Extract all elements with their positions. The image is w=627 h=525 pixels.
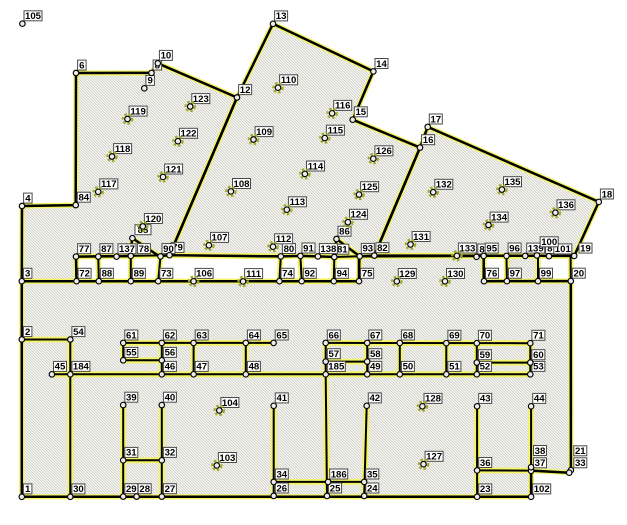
svg-text:64: 64: [249, 330, 260, 341]
svg-text:3: 3: [25, 269, 30, 280]
svg-text:105: 105: [25, 11, 42, 22]
svg-text:91: 91: [303, 243, 314, 254]
svg-text:118: 118: [115, 144, 131, 155]
svg-text:42: 42: [369, 393, 380, 404]
svg-text:99: 99: [541, 269, 552, 280]
svg-text:35: 35: [367, 469, 378, 480]
svg-text:97: 97: [510, 269, 521, 280]
svg-text:132: 132: [436, 180, 452, 191]
svg-text:56: 56: [165, 348, 176, 359]
svg-text:104: 104: [222, 398, 239, 409]
svg-text:88: 88: [102, 269, 113, 280]
svg-text:92: 92: [304, 269, 315, 280]
svg-text:122: 122: [180, 129, 196, 140]
svg-text:93: 93: [362, 244, 373, 255]
svg-text:112: 112: [276, 234, 291, 245]
svg-text:17: 17: [430, 114, 441, 125]
svg-text:128: 128: [425, 394, 442, 405]
svg-text:4: 4: [25, 193, 31, 204]
svg-text:111: 111: [246, 269, 262, 280]
svg-text:58: 58: [370, 349, 381, 360]
svg-text:48: 48: [249, 362, 260, 373]
svg-text:52: 52: [480, 362, 491, 373]
svg-text:6: 6: [79, 60, 84, 71]
svg-text:106: 106: [196, 269, 212, 280]
svg-text:80: 80: [284, 244, 295, 255]
svg-text:32: 32: [165, 448, 176, 459]
svg-text:33: 33: [575, 458, 586, 469]
svg-text:87: 87: [101, 244, 112, 255]
svg-text:46: 46: [165, 362, 176, 373]
svg-text:45: 45: [55, 362, 66, 373]
svg-text:129: 129: [399, 269, 415, 280]
svg-text:138: 138: [320, 244, 337, 255]
svg-text:62: 62: [165, 330, 176, 341]
svg-text:70: 70: [480, 331, 491, 342]
svg-text:36: 36: [480, 458, 491, 469]
svg-text:50: 50: [403, 362, 414, 373]
svg-text:13: 13: [276, 11, 287, 22]
svg-text:28: 28: [139, 484, 150, 495]
svg-text:30: 30: [73, 484, 84, 495]
svg-text:25: 25: [330, 483, 341, 494]
svg-text:23: 23: [480, 484, 491, 495]
svg-text:60: 60: [533, 350, 544, 361]
svg-text:55: 55: [126, 348, 137, 359]
svg-text:15: 15: [355, 107, 366, 118]
svg-text:84: 84: [78, 193, 89, 204]
svg-text:61: 61: [126, 330, 137, 341]
svg-text:10: 10: [161, 51, 172, 62]
svg-text:89: 89: [134, 269, 145, 280]
svg-text:81: 81: [337, 245, 348, 256]
svg-text:82: 82: [377, 243, 388, 254]
svg-text:69: 69: [449, 331, 460, 342]
svg-text:133: 133: [459, 243, 475, 254]
svg-text:126: 126: [376, 146, 392, 157]
svg-text:78: 78: [139, 244, 150, 255]
svg-text:102: 102: [534, 484, 550, 495]
svg-text:125: 125: [362, 182, 379, 193]
svg-text:94: 94: [337, 269, 348, 280]
svg-text:27: 27: [165, 484, 176, 495]
svg-text:65: 65: [276, 330, 287, 341]
svg-text:51: 51: [449, 362, 460, 373]
svg-text:131: 131: [413, 232, 430, 243]
svg-text:39: 39: [126, 393, 137, 404]
svg-text:34: 34: [276, 469, 287, 480]
svg-text:53: 53: [533, 362, 544, 373]
svg-text:75: 75: [362, 269, 373, 280]
svg-text:71: 71: [533, 331, 544, 342]
svg-text:86: 86: [339, 227, 350, 238]
svg-text:108: 108: [233, 179, 250, 190]
svg-text:14: 14: [376, 59, 387, 70]
svg-text:95: 95: [486, 243, 497, 254]
svg-text:120: 120: [145, 214, 161, 225]
svg-text:184: 184: [73, 362, 90, 373]
svg-text:124: 124: [350, 210, 367, 221]
svg-text:38: 38: [535, 446, 546, 457]
svg-text:109: 109: [256, 127, 272, 138]
svg-text:29: 29: [126, 484, 137, 495]
svg-text:40: 40: [165, 393, 176, 404]
svg-text:123: 123: [193, 94, 209, 105]
svg-text:186: 186: [331, 469, 347, 480]
svg-text:121: 121: [166, 164, 183, 175]
svg-text:115: 115: [328, 126, 344, 137]
svg-text:9: 9: [148, 76, 153, 87]
svg-text:12: 12: [240, 85, 251, 96]
svg-text:66: 66: [328, 330, 339, 341]
svg-text:135: 135: [504, 177, 521, 188]
svg-text:67: 67: [370, 330, 381, 341]
svg-text:134: 134: [491, 212, 508, 223]
svg-text:74: 74: [282, 269, 293, 280]
svg-text:73: 73: [161, 269, 172, 280]
svg-text:110: 110: [281, 75, 296, 86]
svg-text:2: 2: [25, 327, 30, 338]
svg-text:57: 57: [328, 349, 339, 360]
svg-text:49: 49: [370, 362, 381, 373]
svg-text:59: 59: [480, 350, 491, 361]
svg-text:26: 26: [276, 483, 287, 494]
svg-text:1: 1: [25, 484, 31, 495]
svg-text:185: 185: [328, 362, 345, 373]
svg-text:44: 44: [534, 394, 545, 405]
svg-text:31: 31: [126, 448, 137, 459]
svg-text:119: 119: [130, 106, 145, 117]
svg-text:19: 19: [580, 243, 591, 254]
svg-text:72: 72: [79, 269, 90, 280]
svg-text:37: 37: [535, 458, 546, 469]
svg-text:127: 127: [426, 452, 442, 463]
svg-text:63: 63: [196, 330, 207, 341]
svg-text:103: 103: [219, 453, 235, 464]
svg-text:113: 113: [290, 197, 305, 208]
svg-text:117: 117: [101, 179, 116, 190]
svg-text:114: 114: [308, 161, 324, 172]
svg-text:18: 18: [602, 189, 613, 200]
svg-text:107: 107: [211, 233, 227, 244]
svg-text:68: 68: [403, 330, 414, 341]
svg-text:130: 130: [447, 269, 463, 280]
svg-text:76: 76: [487, 269, 498, 280]
svg-text:54: 54: [73, 327, 84, 338]
svg-text:96: 96: [509, 243, 520, 254]
svg-text:136: 136: [558, 200, 574, 211]
svg-text:41: 41: [276, 393, 287, 404]
svg-text:77: 77: [79, 244, 90, 255]
svg-text:21: 21: [575, 446, 586, 457]
svg-text:20: 20: [573, 269, 584, 280]
svg-text:24: 24: [367, 483, 378, 494]
svg-text:16: 16: [423, 135, 434, 146]
svg-text:43: 43: [480, 394, 491, 405]
svg-text:47: 47: [196, 362, 207, 373]
svg-text:116: 116: [335, 101, 350, 112]
svg-text:100: 100: [541, 237, 557, 248]
